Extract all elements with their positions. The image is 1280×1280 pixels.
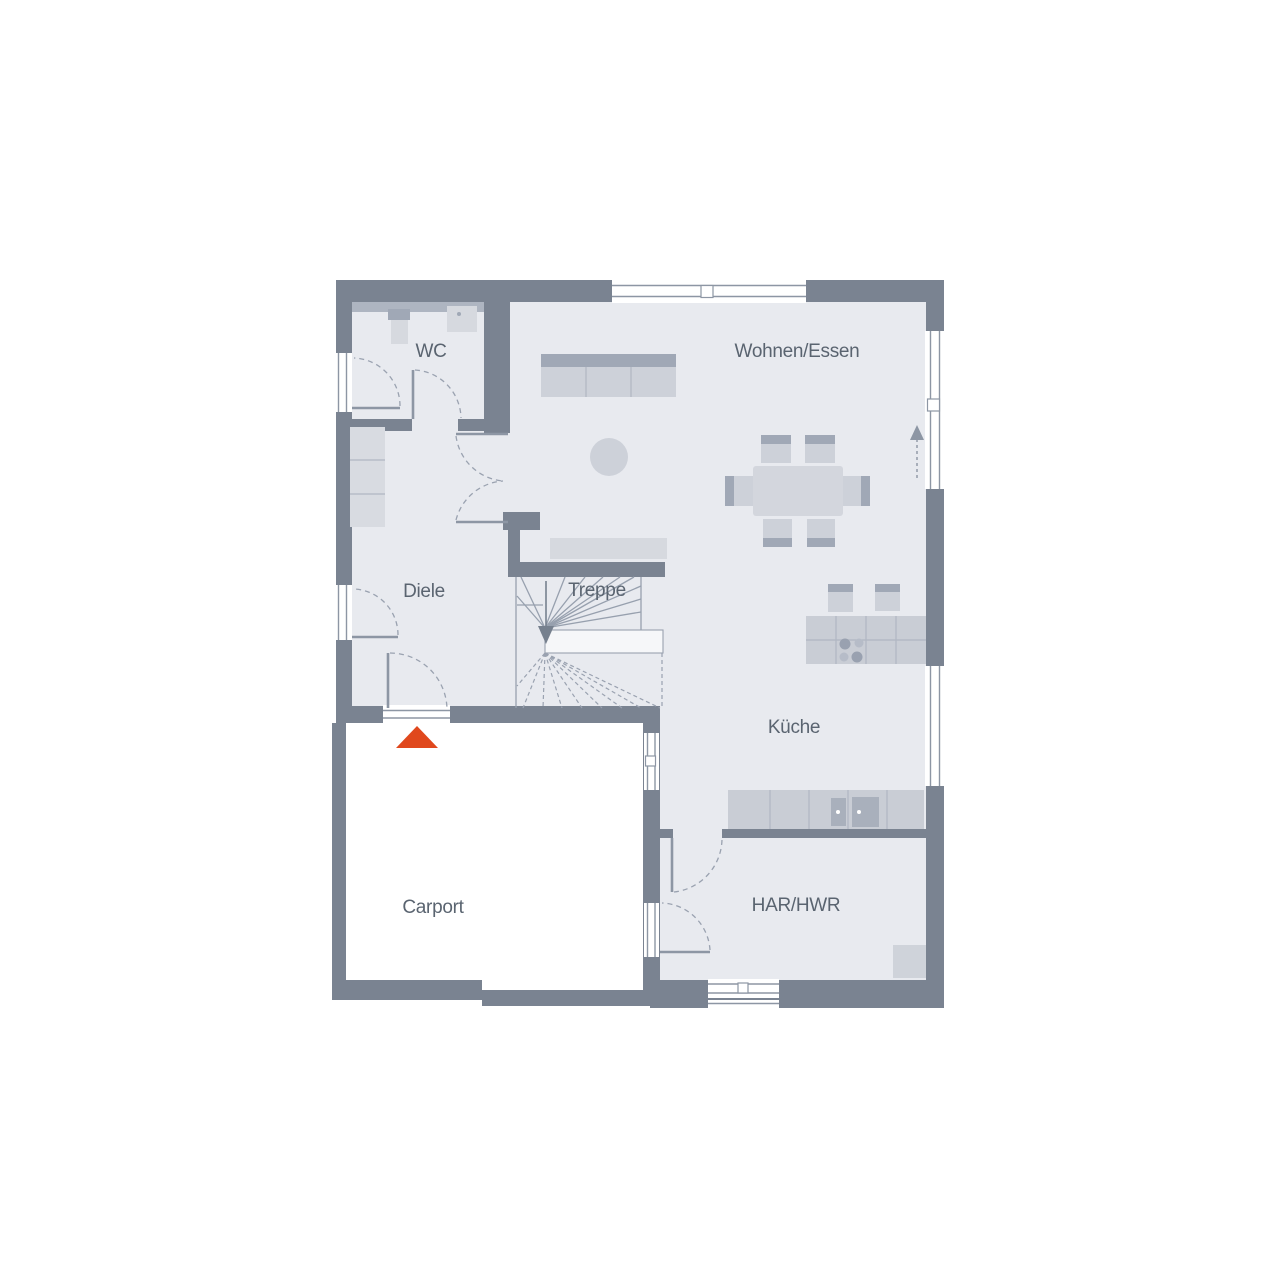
floor-plan-drawing [0, 0, 1280, 1280]
room-label-carport: Carport [402, 897, 463, 919]
window-east-living [925, 331, 945, 489]
window-handle-icon [928, 399, 940, 411]
kitchen-counter [728, 790, 924, 829]
window-east-kitchen [925, 666, 945, 786]
wall-stair-top [508, 562, 665, 577]
entrance-marker [396, 726, 438, 748]
wall-kueche-har-stub [660, 829, 673, 838]
bar-stool [828, 584, 853, 612]
room-label-treppe: Treppe [568, 580, 626, 602]
room-label-diele: Diele [403, 581, 445, 603]
room-label-wc: WC [415, 341, 446, 363]
dining-chair [807, 519, 835, 547]
wall-carport-left [332, 723, 346, 1000]
dining-chair [843, 476, 870, 506]
dining-chair [725, 476, 753, 506]
wall-carport-bottom-right [482, 990, 650, 1006]
coffee-table [590, 438, 628, 476]
window-carport-wall [644, 733, 659, 790]
washbasin [447, 306, 477, 332]
wall-stair-stub [508, 525, 520, 565]
har-appliance [893, 945, 926, 978]
sideboard [550, 538, 667, 559]
kitchen-island-counter [806, 616, 926, 664]
window-handle-icon [738, 983, 748, 993]
room-label-wohnen-essen: Wohnen/Essen [735, 341, 860, 363]
window-top [612, 279, 806, 303]
window-handle-icon [646, 756, 656, 766]
room-label-har-hwr: HAR/HWR [752, 895, 841, 917]
wall-carport-bottom-left [332, 980, 482, 1000]
dining-chair [805, 435, 835, 463]
dining-chair [763, 519, 792, 547]
floor-plan: WC Wohnen/Essen Diele Treppe Küche Carpo… [0, 0, 1280, 1280]
wardrobe [350, 427, 385, 527]
wall-wc-south-b [458, 419, 510, 431]
sofa [541, 354, 676, 397]
stair-landing [545, 630, 663, 653]
room-label-kueche: Küche [768, 717, 820, 739]
wall-kueche-har [722, 829, 944, 838]
wall-wc-east [484, 302, 510, 433]
window-har-bottom [708, 979, 779, 1008]
sink-unit [831, 797, 879, 827]
dining-chair [761, 435, 791, 463]
dining-table [753, 466, 843, 516]
window-handle-icon [701, 286, 713, 298]
wall-bottom-right [650, 980, 944, 1008]
bar-stool [875, 584, 900, 611]
toilet [388, 309, 410, 344]
